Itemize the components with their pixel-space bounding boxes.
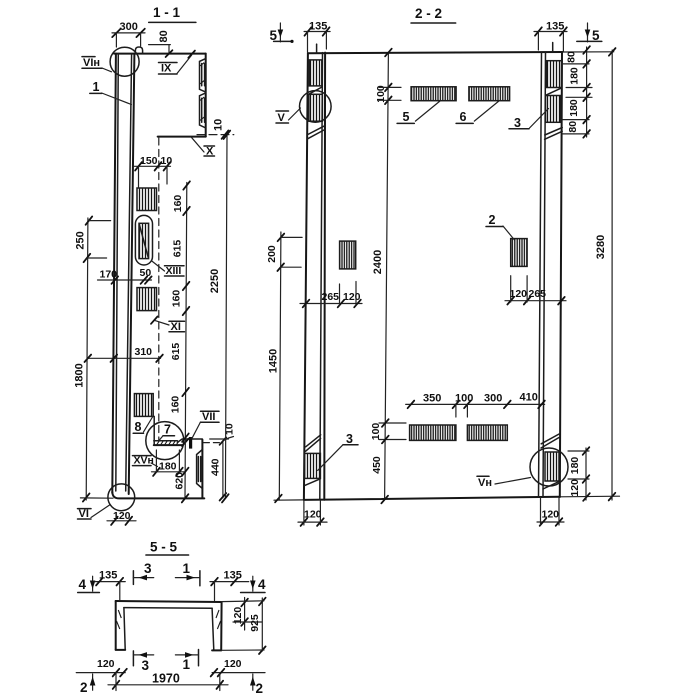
svg-text:120: 120 bbox=[569, 479, 581, 497]
svg-text:160: 160 bbox=[171, 290, 183, 308]
svg-text:135: 135 bbox=[309, 21, 327, 33]
svg-text:Vн: Vн bbox=[478, 477, 492, 489]
svg-text:80: 80 bbox=[567, 121, 579, 133]
svg-text:1: 1 bbox=[183, 561, 191, 576]
svg-text:2 - 2: 2 - 2 bbox=[415, 6, 442, 21]
svg-text:120: 120 bbox=[343, 291, 361, 303]
svg-text:925: 925 bbox=[249, 614, 261, 632]
svg-text:80: 80 bbox=[566, 51, 578, 63]
svg-text:VI: VI bbox=[79, 508, 89, 520]
svg-text:450: 450 bbox=[371, 456, 383, 474]
svg-text:300: 300 bbox=[120, 21, 138, 33]
svg-text:160: 160 bbox=[172, 195, 184, 213]
svg-text:5: 5 bbox=[403, 110, 410, 124]
svg-text:2: 2 bbox=[80, 680, 88, 695]
svg-text:4: 4 bbox=[258, 577, 266, 592]
svg-text:1: 1 bbox=[93, 80, 100, 94]
svg-text:180: 180 bbox=[569, 457, 581, 475]
svg-text:5 - 5: 5 - 5 bbox=[150, 540, 178, 555]
svg-text:180: 180 bbox=[568, 99, 580, 117]
svg-text:XIII: XIII bbox=[166, 265, 182, 277]
svg-text:150: 150 bbox=[140, 155, 158, 167]
svg-text:170: 170 bbox=[100, 269, 118, 281]
svg-text:180: 180 bbox=[159, 461, 177, 473]
svg-text:3: 3 bbox=[142, 658, 150, 673]
svg-text:1800: 1800 bbox=[74, 363, 86, 387]
svg-text:615: 615 bbox=[170, 343, 182, 361]
svg-text:180: 180 bbox=[569, 67, 581, 85]
svg-text:7: 7 bbox=[164, 423, 171, 437]
svg-text:250: 250 bbox=[75, 231, 87, 249]
svg-text:160: 160 bbox=[170, 396, 182, 414]
svg-text:120: 120 bbox=[97, 658, 115, 670]
svg-text:3: 3 bbox=[144, 561, 152, 576]
svg-text:310: 310 bbox=[135, 346, 153, 358]
svg-text:265: 265 bbox=[529, 288, 547, 300]
svg-text:V: V bbox=[278, 112, 286, 124]
svg-text:3280: 3280 bbox=[595, 235, 607, 259]
svg-text:3: 3 bbox=[514, 116, 521, 130]
svg-text:VII: VII bbox=[202, 411, 215, 423]
svg-text:10: 10 bbox=[161, 155, 173, 167]
svg-text:80: 80 bbox=[158, 30, 170, 42]
svg-text:265: 265 bbox=[322, 291, 340, 303]
svg-text:135: 135 bbox=[546, 21, 564, 33]
svg-text:120: 120 bbox=[224, 658, 242, 670]
svg-text:300: 300 bbox=[484, 393, 502, 405]
svg-text:135: 135 bbox=[224, 570, 242, 582]
svg-text:2: 2 bbox=[489, 213, 496, 227]
svg-text:1970: 1970 bbox=[152, 672, 180, 686]
svg-text:100: 100 bbox=[370, 423, 382, 441]
svg-text:4: 4 bbox=[79, 577, 87, 592]
svg-text:2: 2 bbox=[256, 681, 264, 696]
svg-text:615: 615 bbox=[172, 240, 184, 258]
svg-text:2250: 2250 bbox=[209, 269, 221, 293]
svg-text:VIн: VIн bbox=[83, 57, 100, 69]
svg-text:IX: IX bbox=[161, 63, 172, 75]
svg-text:1: 1 bbox=[183, 657, 191, 672]
svg-text:410: 410 bbox=[520, 392, 538, 404]
svg-text:350: 350 bbox=[423, 393, 441, 405]
svg-text:3: 3 bbox=[346, 432, 353, 446]
svg-text:8: 8 bbox=[135, 420, 142, 434]
svg-text:1450: 1450 bbox=[268, 349, 280, 373]
svg-text:2400: 2400 bbox=[372, 250, 384, 274]
svg-text:120: 120 bbox=[542, 509, 560, 521]
svg-text:6: 6 bbox=[460, 110, 467, 124]
svg-text:10: 10 bbox=[213, 119, 225, 131]
svg-text:440: 440 bbox=[210, 458, 222, 476]
svg-text:200: 200 bbox=[266, 245, 278, 263]
svg-text:1 - 1: 1 - 1 bbox=[153, 5, 181, 20]
